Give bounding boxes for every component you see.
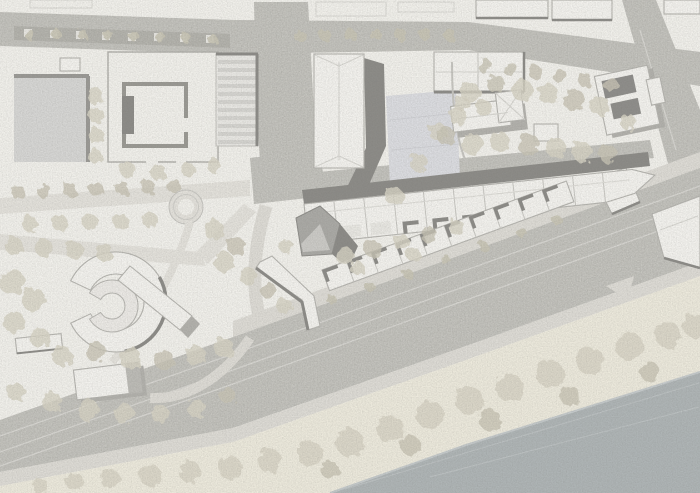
paper-grain-overlay: [0, 0, 700, 493]
site-plan-canvas: [0, 0, 700, 493]
site-plan: [0, 0, 700, 493]
